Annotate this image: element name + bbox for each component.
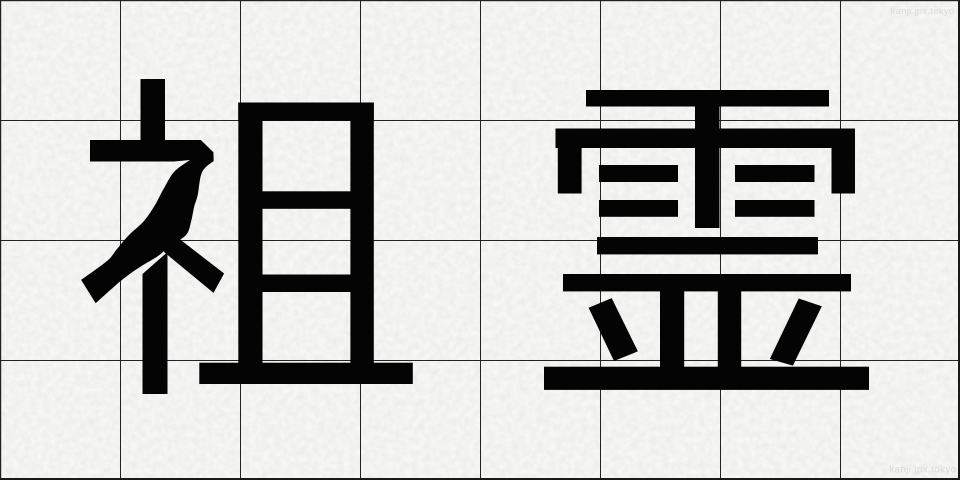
svg-text:kanji.jpx.tokyo: kanji.jpx.tokyo [889, 465, 956, 476]
svg-text:kanji.jpx.tokyo: kanji.jpx.tokyo [890, 6, 954, 17]
